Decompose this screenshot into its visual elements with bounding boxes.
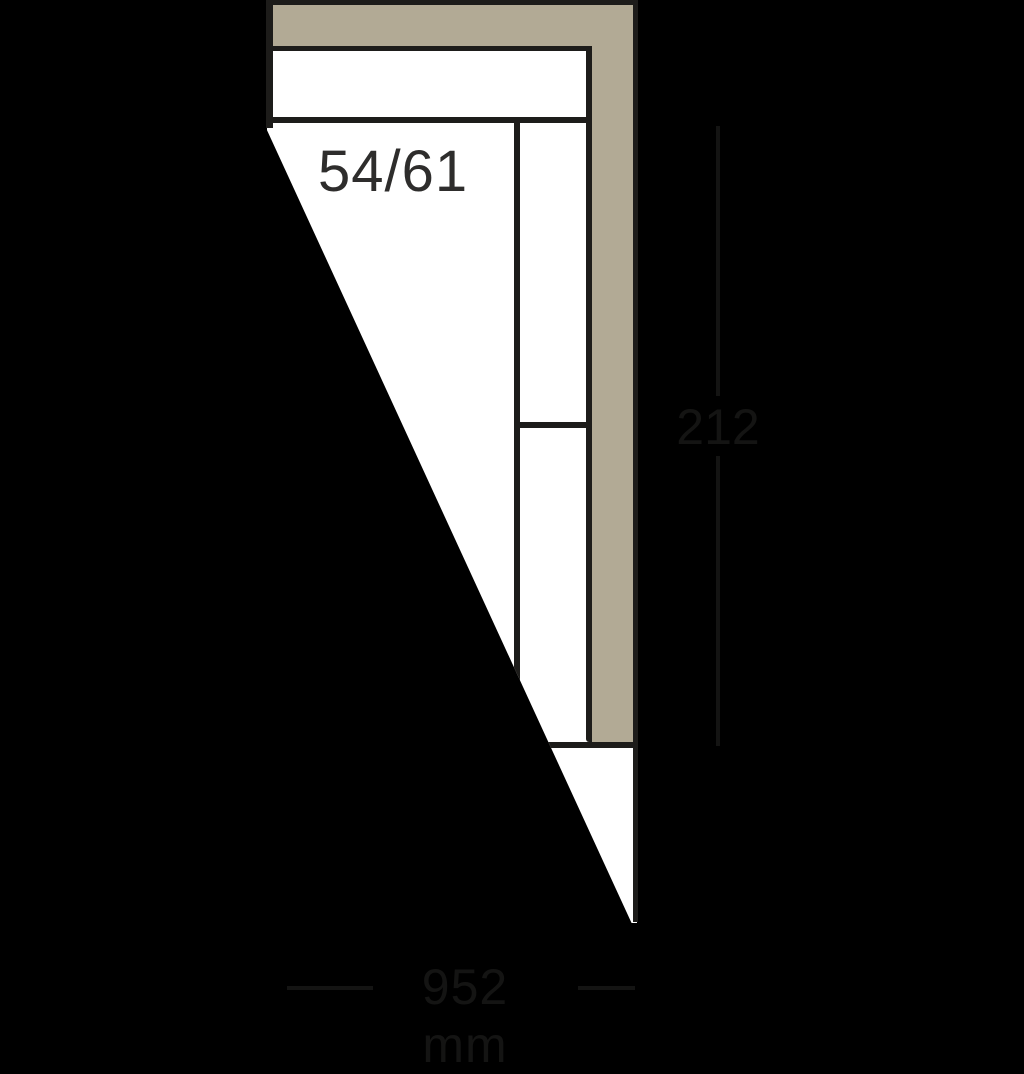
backrest-cushion-top bbox=[273, 5, 633, 46]
outline-top bbox=[267, 0, 637, 5]
width-dimension-label: 952 mm bbox=[374, 958, 556, 1074]
backrest-inner-edge-top bbox=[267, 46, 592, 51]
width-dimension-line-right bbox=[578, 986, 635, 990]
sofa-element-diagram: 54/61 bbox=[0, 0, 1024, 1024]
seat-divider-horizontal bbox=[520, 422, 586, 428]
height-dimension-line-upper bbox=[716, 126, 720, 396]
outline-bottom bbox=[267, 742, 637, 748]
outline-left bbox=[266, 0, 273, 128]
model-label: 54/61 bbox=[318, 138, 538, 205]
backrest-inner-edge-right bbox=[586, 46, 592, 742]
height-dimension-line-lower bbox=[716, 456, 720, 746]
backrest-cushion-right bbox=[592, 5, 633, 742]
seat-divider-vertical bbox=[514, 123, 520, 748]
height-dimension-label: 212 bbox=[668, 398, 768, 456]
seat-front-edge-line bbox=[267, 117, 592, 123]
width-dimension-line-left bbox=[287, 986, 373, 990]
outline-right bbox=[633, 0, 638, 922]
